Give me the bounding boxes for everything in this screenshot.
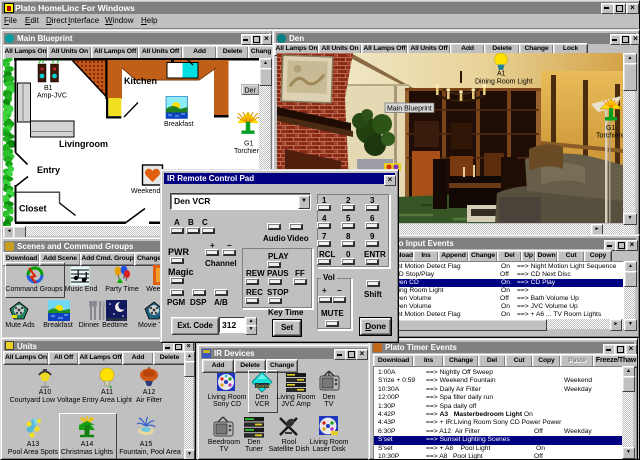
svg-text:Main Blueprint: Main Blueprint	[387, 105, 432, 112]
svg-text:DenVcr: DenVcr	[256, 383, 272, 388]
svg-text:Breakfast: Breakfast	[164, 121, 194, 128]
svg-text:Amp-JVC: Amp-JVC	[37, 93, 67, 100]
svg-text:G1: G1	[244, 141, 253, 148]
svg-text:Kitchen: Kitchen	[124, 76, 157, 86]
svg-text:Torchier: Torchier	[234, 148, 259, 155]
svg-text:Closet: Closet	[19, 204, 47, 214]
svg-text:Entry: Entry	[37, 165, 60, 175]
svg-text:Dining Room Light: Dining Room Light	[475, 79, 533, 86]
svg-text:Livingroom: Livingroom	[59, 139, 108, 149]
svg-text:Torchiere: Torchiere	[596, 133, 623, 140]
svg-text:Weekend.: Weekend.	[131, 188, 162, 195]
svg-text:Der: Der	[245, 88, 257, 95]
svg-text:G1: G1	[606, 125, 615, 132]
svg-text:B1: B1	[44, 85, 53, 92]
svg-text:A1: A1	[497, 71, 506, 78]
